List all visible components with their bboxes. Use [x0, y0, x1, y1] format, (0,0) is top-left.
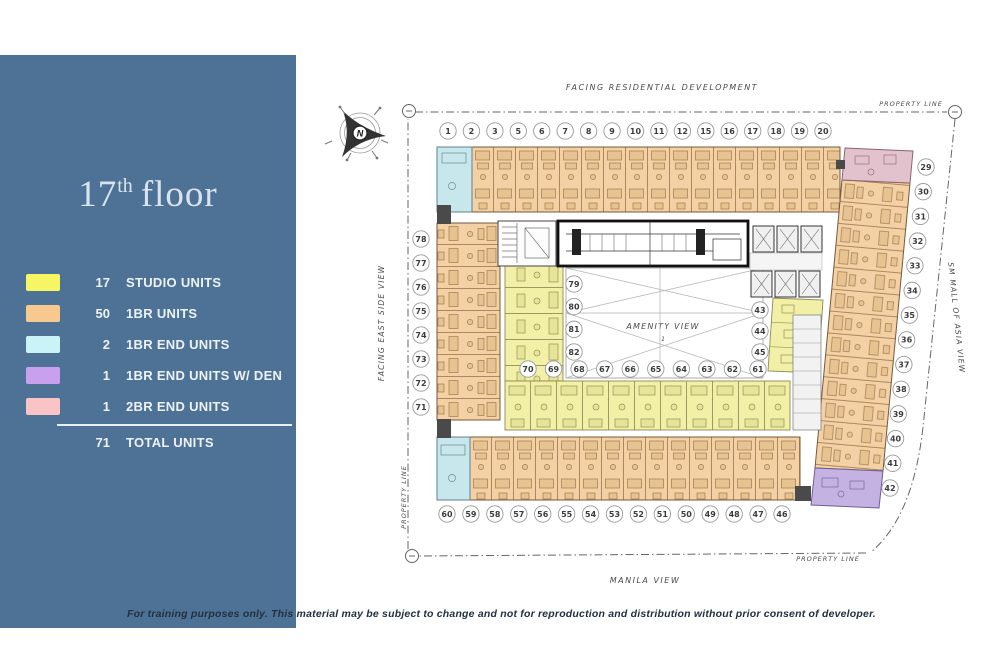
unit-number-label: 49	[705, 510, 717, 519]
unit-number-label: 68	[574, 365, 586, 374]
unit-number-label: 70	[522, 365, 534, 374]
unit-number-label: 79	[568, 280, 580, 289]
unit-number-label: 38	[896, 385, 908, 394]
studio-count: 17	[74, 275, 110, 290]
unit-circles-top: 12356789101112151617181920	[440, 123, 831, 139]
unit-number-label: 39	[893, 410, 905, 419]
1br-end-swatch	[26, 336, 60, 353]
2br-end-label: 2BR END UNITS	[126, 399, 230, 414]
unit-number-label: 53	[609, 510, 620, 519]
legend-row-2br-end: 1 2BR END UNITS	[0, 391, 296, 422]
total-count: 71	[74, 435, 110, 450]
unit-number-label: 60	[441, 510, 453, 519]
unit-number-label: 12	[677, 127, 688, 136]
unit-number-label: 7	[562, 127, 568, 136]
unit-number-label: 35	[904, 311, 916, 320]
label-facing-east: FACING EAST SIDE VIEW	[377, 265, 386, 381]
title-number: 17	[78, 174, 117, 215]
bottom-wing-1br	[437, 437, 800, 500]
unit-number-label: 29	[920, 163, 932, 172]
unit-number-label: 51	[657, 510, 669, 519]
total-label: TOTAL UNITS	[126, 435, 214, 450]
legend-row-1br: 50 1BR UNITS	[0, 298, 296, 329]
unit-number-label: 62	[727, 365, 738, 374]
unit-number-label: 61	[752, 365, 764, 374]
unit-number-label: 45	[754, 348, 766, 357]
elevator-bank	[750, 226, 822, 297]
1br-swatch	[26, 305, 60, 322]
unit-number-label: 18	[771, 127, 783, 136]
label-property-line-bottom: PROPERTY LINE	[796, 555, 860, 563]
label-amenity-marker: 1	[661, 336, 665, 343]
unit-number-label: 1	[445, 127, 451, 136]
unit-number-label: 42	[884, 484, 895, 493]
unit-number-label: 47	[753, 510, 764, 519]
unit-number-label: 58	[489, 510, 501, 519]
unit-number-label: 67	[599, 365, 610, 374]
legend-divider	[57, 424, 292, 426]
unit-number-label: 8	[586, 127, 592, 136]
sidebar: 17thfloor 17 STUDIO UNITS 50 1BR UNITS 2…	[0, 55, 296, 628]
unit-number-label: 57	[513, 510, 524, 519]
unit-number-label: 37	[898, 360, 909, 369]
unit-number-label: 50	[681, 510, 693, 519]
unit-number-label: 52	[633, 510, 644, 519]
unit-number-label: 9	[609, 127, 615, 136]
unit-number-label: 65	[650, 365, 662, 374]
unit-number-label: 15	[700, 127, 712, 136]
unit-number-label: 59	[465, 510, 477, 519]
studio-label: STUDIO UNITS	[126, 275, 221, 290]
1br-end-den-swatch	[26, 367, 60, 384]
unit-number-label: 63	[701, 365, 712, 374]
compass-n-label: N	[357, 129, 364, 139]
1br-label: 1BR UNITS	[126, 306, 197, 321]
unit-number-label: 73	[415, 355, 426, 364]
unit-number-label: 16	[724, 127, 736, 136]
unit-number-label: 43	[754, 306, 765, 315]
unit-number-label: 72	[415, 379, 426, 388]
unit-number-label: 20	[817, 127, 829, 136]
unit-number-label: 69	[548, 365, 560, 374]
unit-number-label: 6	[539, 127, 545, 136]
unit-number-label: 64	[676, 365, 688, 374]
unit-number-label: 66	[625, 365, 637, 374]
unit-number-label: 76	[415, 283, 427, 292]
1br-end-label: 1BR END UNITS	[126, 337, 230, 352]
label-amenity-view: AMENITY VIEW	[625, 322, 699, 331]
unit-number-label: 36	[901, 336, 913, 345]
top-wing-1br	[437, 147, 840, 212]
1br-end-den-count: 1	[74, 368, 110, 383]
title-word: floor	[141, 174, 218, 215]
legend-row-1br-end: 2 1BR END UNITS	[0, 329, 296, 360]
page-title: 17thfloor	[0, 173, 296, 216]
1br-end-den-label: 1BR END UNITS W/ DEN	[126, 368, 282, 383]
legend-row-1br-end-den: 1 1BR END UNITS W/ DEN	[0, 360, 296, 391]
unit-circles-inner-left: 79808182	[566, 276, 582, 360]
legend-row-total: 71 TOTAL UNITS	[0, 428, 296, 456]
compass-icon: N	[325, 106, 388, 162]
legend: 17 STUDIO UNITS 50 1BR UNITS 2 1BR END U…	[0, 267, 296, 456]
unit-number-label: 75	[415, 307, 427, 316]
label-manila-view: MANILA VIEW	[610, 576, 681, 585]
label-property-line-top: PROPERTY LINE	[879, 100, 943, 108]
label-property-line-left: PROPERTY LINE	[400, 465, 408, 529]
unit-number-label: 41	[887, 459, 899, 468]
unit-number-label: 2	[469, 127, 475, 136]
unit-number-label: 30	[918, 188, 930, 197]
unit-2br-end	[842, 148, 913, 183]
label-sm-moa-view: SM MALL OF ASIA VIEW	[946, 262, 967, 374]
unit-circles-left: 7877767574737271	[413, 231, 429, 415]
label-facing-residential: FACING RESIDENTIAL DEVELOPMENT	[566, 83, 758, 92]
unit-number-label: 5	[516, 127, 522, 136]
unit-number-label: 81	[568, 325, 580, 334]
unit-number-label: 10	[630, 127, 642, 136]
2br-end-count: 1	[74, 399, 110, 414]
unit-number-label: 78	[415, 235, 427, 244]
1br-count: 50	[74, 306, 110, 321]
unit-number-label: 3	[492, 127, 498, 136]
unit-number-label: 17	[747, 127, 758, 136]
unit-number-label: 56	[537, 510, 549, 519]
unit-number-label: 40	[890, 435, 902, 444]
unit-circles-bottom: 605958575655545352515049484746	[439, 506, 790, 522]
disclaimer-text: For training purposes only. This materia…	[127, 608, 897, 620]
unit-number-label: 32	[912, 237, 923, 246]
unit-number-label: 11	[653, 127, 665, 136]
legend-row-studio: 17 STUDIO UNITS	[0, 267, 296, 298]
unit-number-label: 77	[415, 259, 426, 268]
1br-end-count: 2	[74, 337, 110, 352]
unit-number-label: 82	[568, 348, 579, 357]
service-room-column	[793, 315, 821, 430]
studio-swatch	[26, 274, 60, 291]
unit-number-label: 55	[561, 510, 573, 519]
unit-circles-inner-right: 434445	[752, 302, 768, 360]
unit-number-label: 31	[915, 212, 927, 221]
unit-number-label: 33	[909, 262, 920, 271]
unit-number-label: 74	[415, 331, 427, 340]
core-hallway	[498, 221, 748, 266]
title-ordinal: th	[117, 175, 133, 197]
2br-end-swatch	[26, 398, 60, 415]
unit-1br-end-den	[811, 468, 883, 508]
unit-number-label: 46	[776, 510, 788, 519]
unit-number-label: 80	[568, 303, 580, 312]
unit-number-label: 71	[415, 403, 427, 412]
slide: { "slide": { "title": { "number": "17", …	[0, 0, 1008, 672]
unit-circles-inner-bottom: 70696867666564636261	[520, 361, 766, 377]
unit-number-label: 54	[585, 510, 597, 519]
unit-number-label: 44	[754, 327, 766, 336]
unit-number-label: 48	[729, 510, 741, 519]
unit-number-label: 19	[794, 127, 806, 136]
unit-number-label: 34	[907, 286, 919, 295]
left-wing-1br	[437, 223, 500, 420]
